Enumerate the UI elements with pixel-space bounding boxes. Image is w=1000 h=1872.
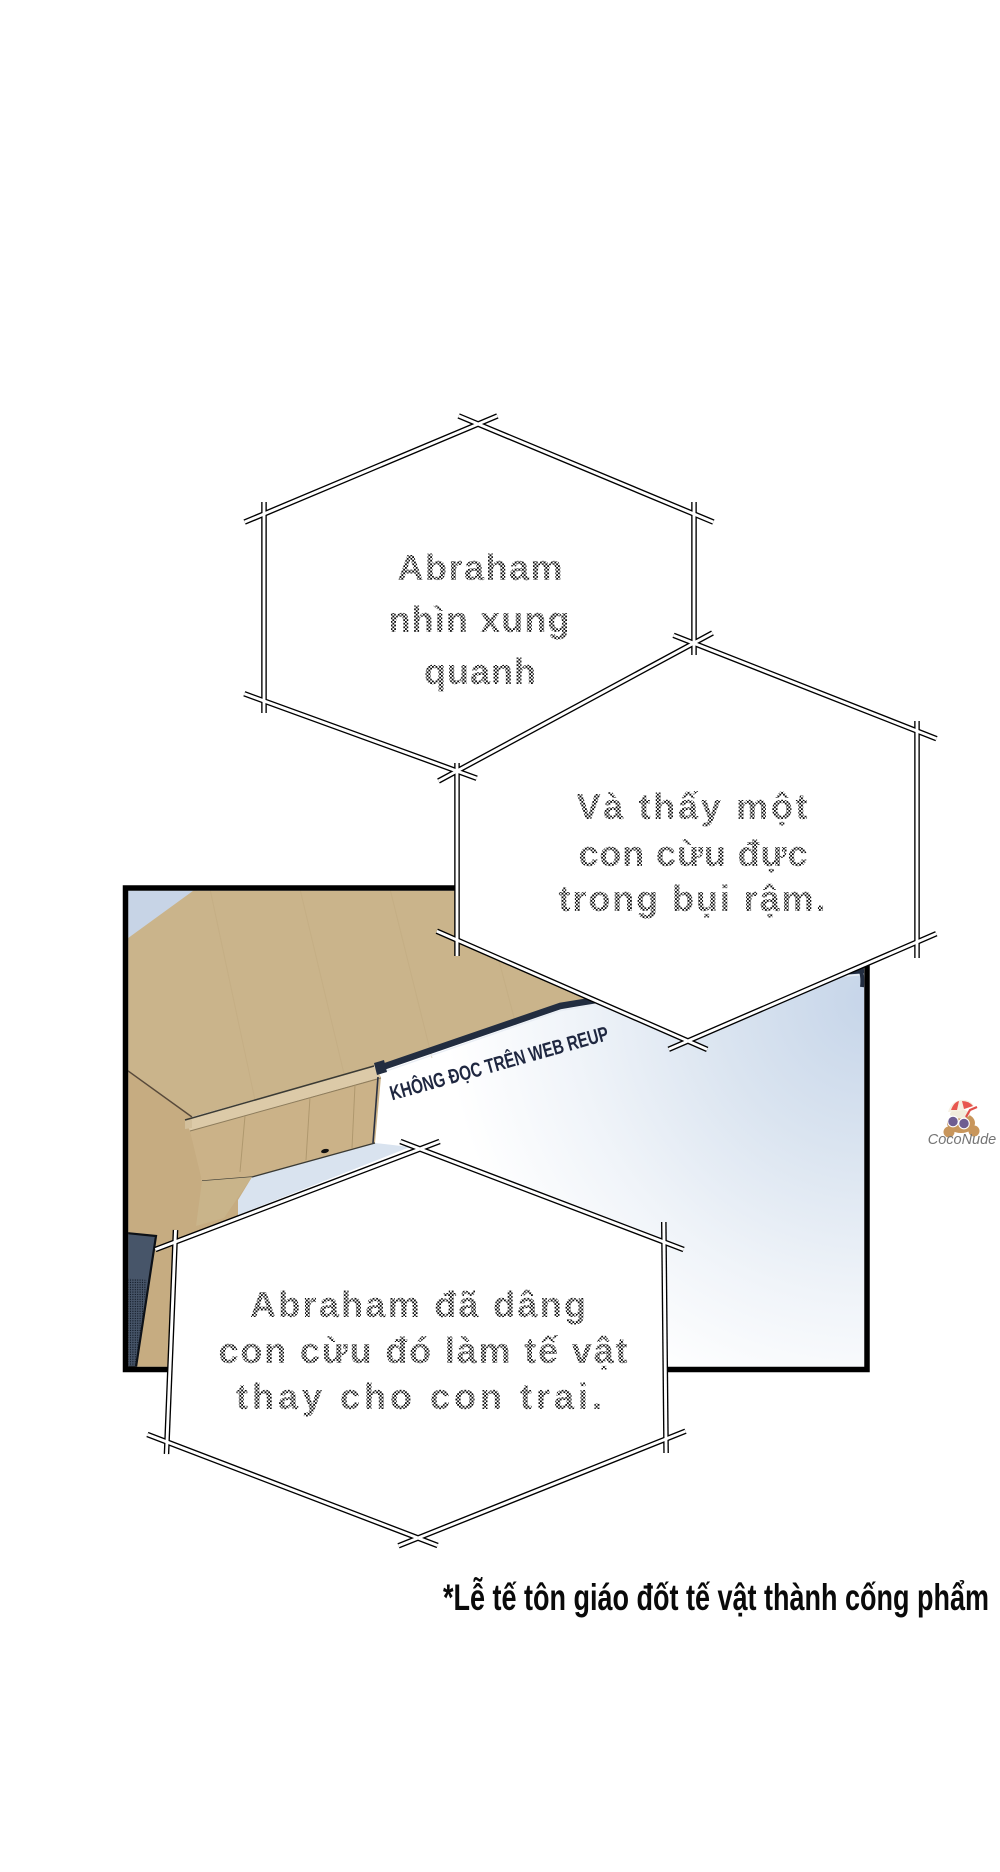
svg-text:Và thấy một: Và thấy một bbox=[577, 786, 808, 827]
svg-text:con cừu đó làm tế vật: con cừu đó làm tế vật bbox=[219, 1330, 628, 1371]
svg-text:*Lễ tế tôn giáo đốt tế vật thà: *Lễ tế tôn giáo đốt tế vật thành cống ph… bbox=[443, 1577, 989, 1618]
svg-text:con cừu đực: con cừu đực bbox=[579, 833, 808, 874]
svg-text:quanh: quanh bbox=[424, 651, 536, 692]
svg-text:CocoNude: CocoNude bbox=[928, 1132, 997, 1148]
svg-text:thay cho con trai.: thay cho con trai. bbox=[236, 1376, 602, 1417]
svg-text:Abraham: Abraham bbox=[398, 547, 563, 588]
svg-text:trong bụi rậm.: trong bụi rậm. bbox=[559, 878, 826, 919]
